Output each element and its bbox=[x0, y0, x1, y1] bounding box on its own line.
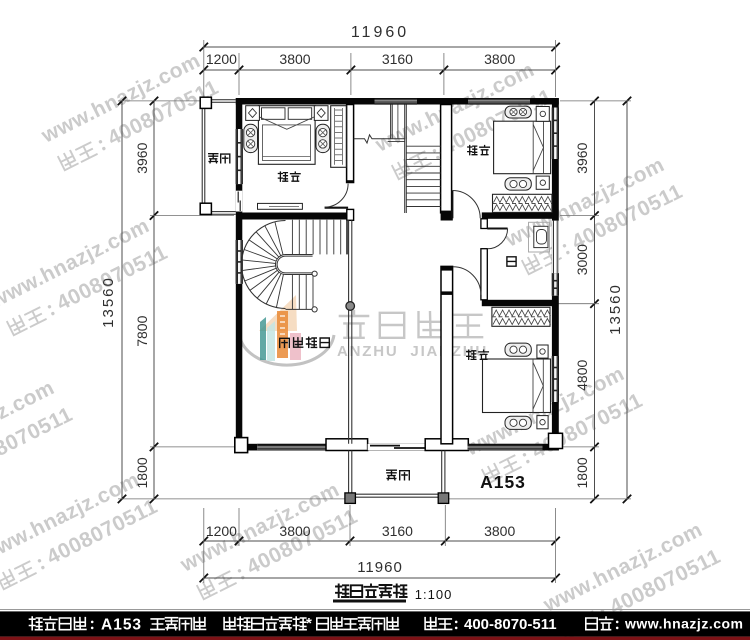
svg-text:13560: 13560 bbox=[100, 276, 117, 328]
svg-text:1800: 1800 bbox=[574, 457, 590, 488]
svg-text:7800: 7800 bbox=[134, 315, 150, 346]
svg-text:400-8070-511: 400-8070-511 bbox=[464, 616, 557, 633]
svg-text:A153: A153 bbox=[101, 617, 142, 634]
svg-text:A153: A153 bbox=[480, 472, 526, 492]
svg-text:3960: 3960 bbox=[574, 142, 590, 173]
svg-text:3800: 3800 bbox=[279, 51, 310, 67]
svg-text:3160: 3160 bbox=[382, 523, 413, 539]
svg-text:13560: 13560 bbox=[607, 283, 624, 335]
svg-text:3800: 3800 bbox=[484, 523, 515, 539]
svg-text:4800: 4800 bbox=[574, 360, 590, 391]
svg-text:1800: 1800 bbox=[134, 457, 150, 488]
svg-text:*: * bbox=[306, 615, 312, 632]
svg-text:3800: 3800 bbox=[484, 51, 515, 67]
svg-text:ANZHU JIANZHU: ANZHU JIANZHU bbox=[337, 343, 488, 360]
svg-text:11960: 11960 bbox=[351, 24, 409, 41]
svg-text:3160: 3160 bbox=[382, 51, 413, 67]
svg-text:3960: 3960 bbox=[134, 142, 150, 173]
svg-text:1:100: 1:100 bbox=[415, 587, 453, 602]
svg-text:11960: 11960 bbox=[357, 559, 403, 576]
svg-text:1200: 1200 bbox=[206, 51, 237, 67]
svg-text:3800: 3800 bbox=[279, 523, 310, 539]
svg-text:1200: 1200 bbox=[206, 523, 237, 539]
svg-text:3000: 3000 bbox=[574, 244, 590, 275]
svg-text:www.hnazjz.com: www.hnazjz.com bbox=[624, 616, 744, 632]
